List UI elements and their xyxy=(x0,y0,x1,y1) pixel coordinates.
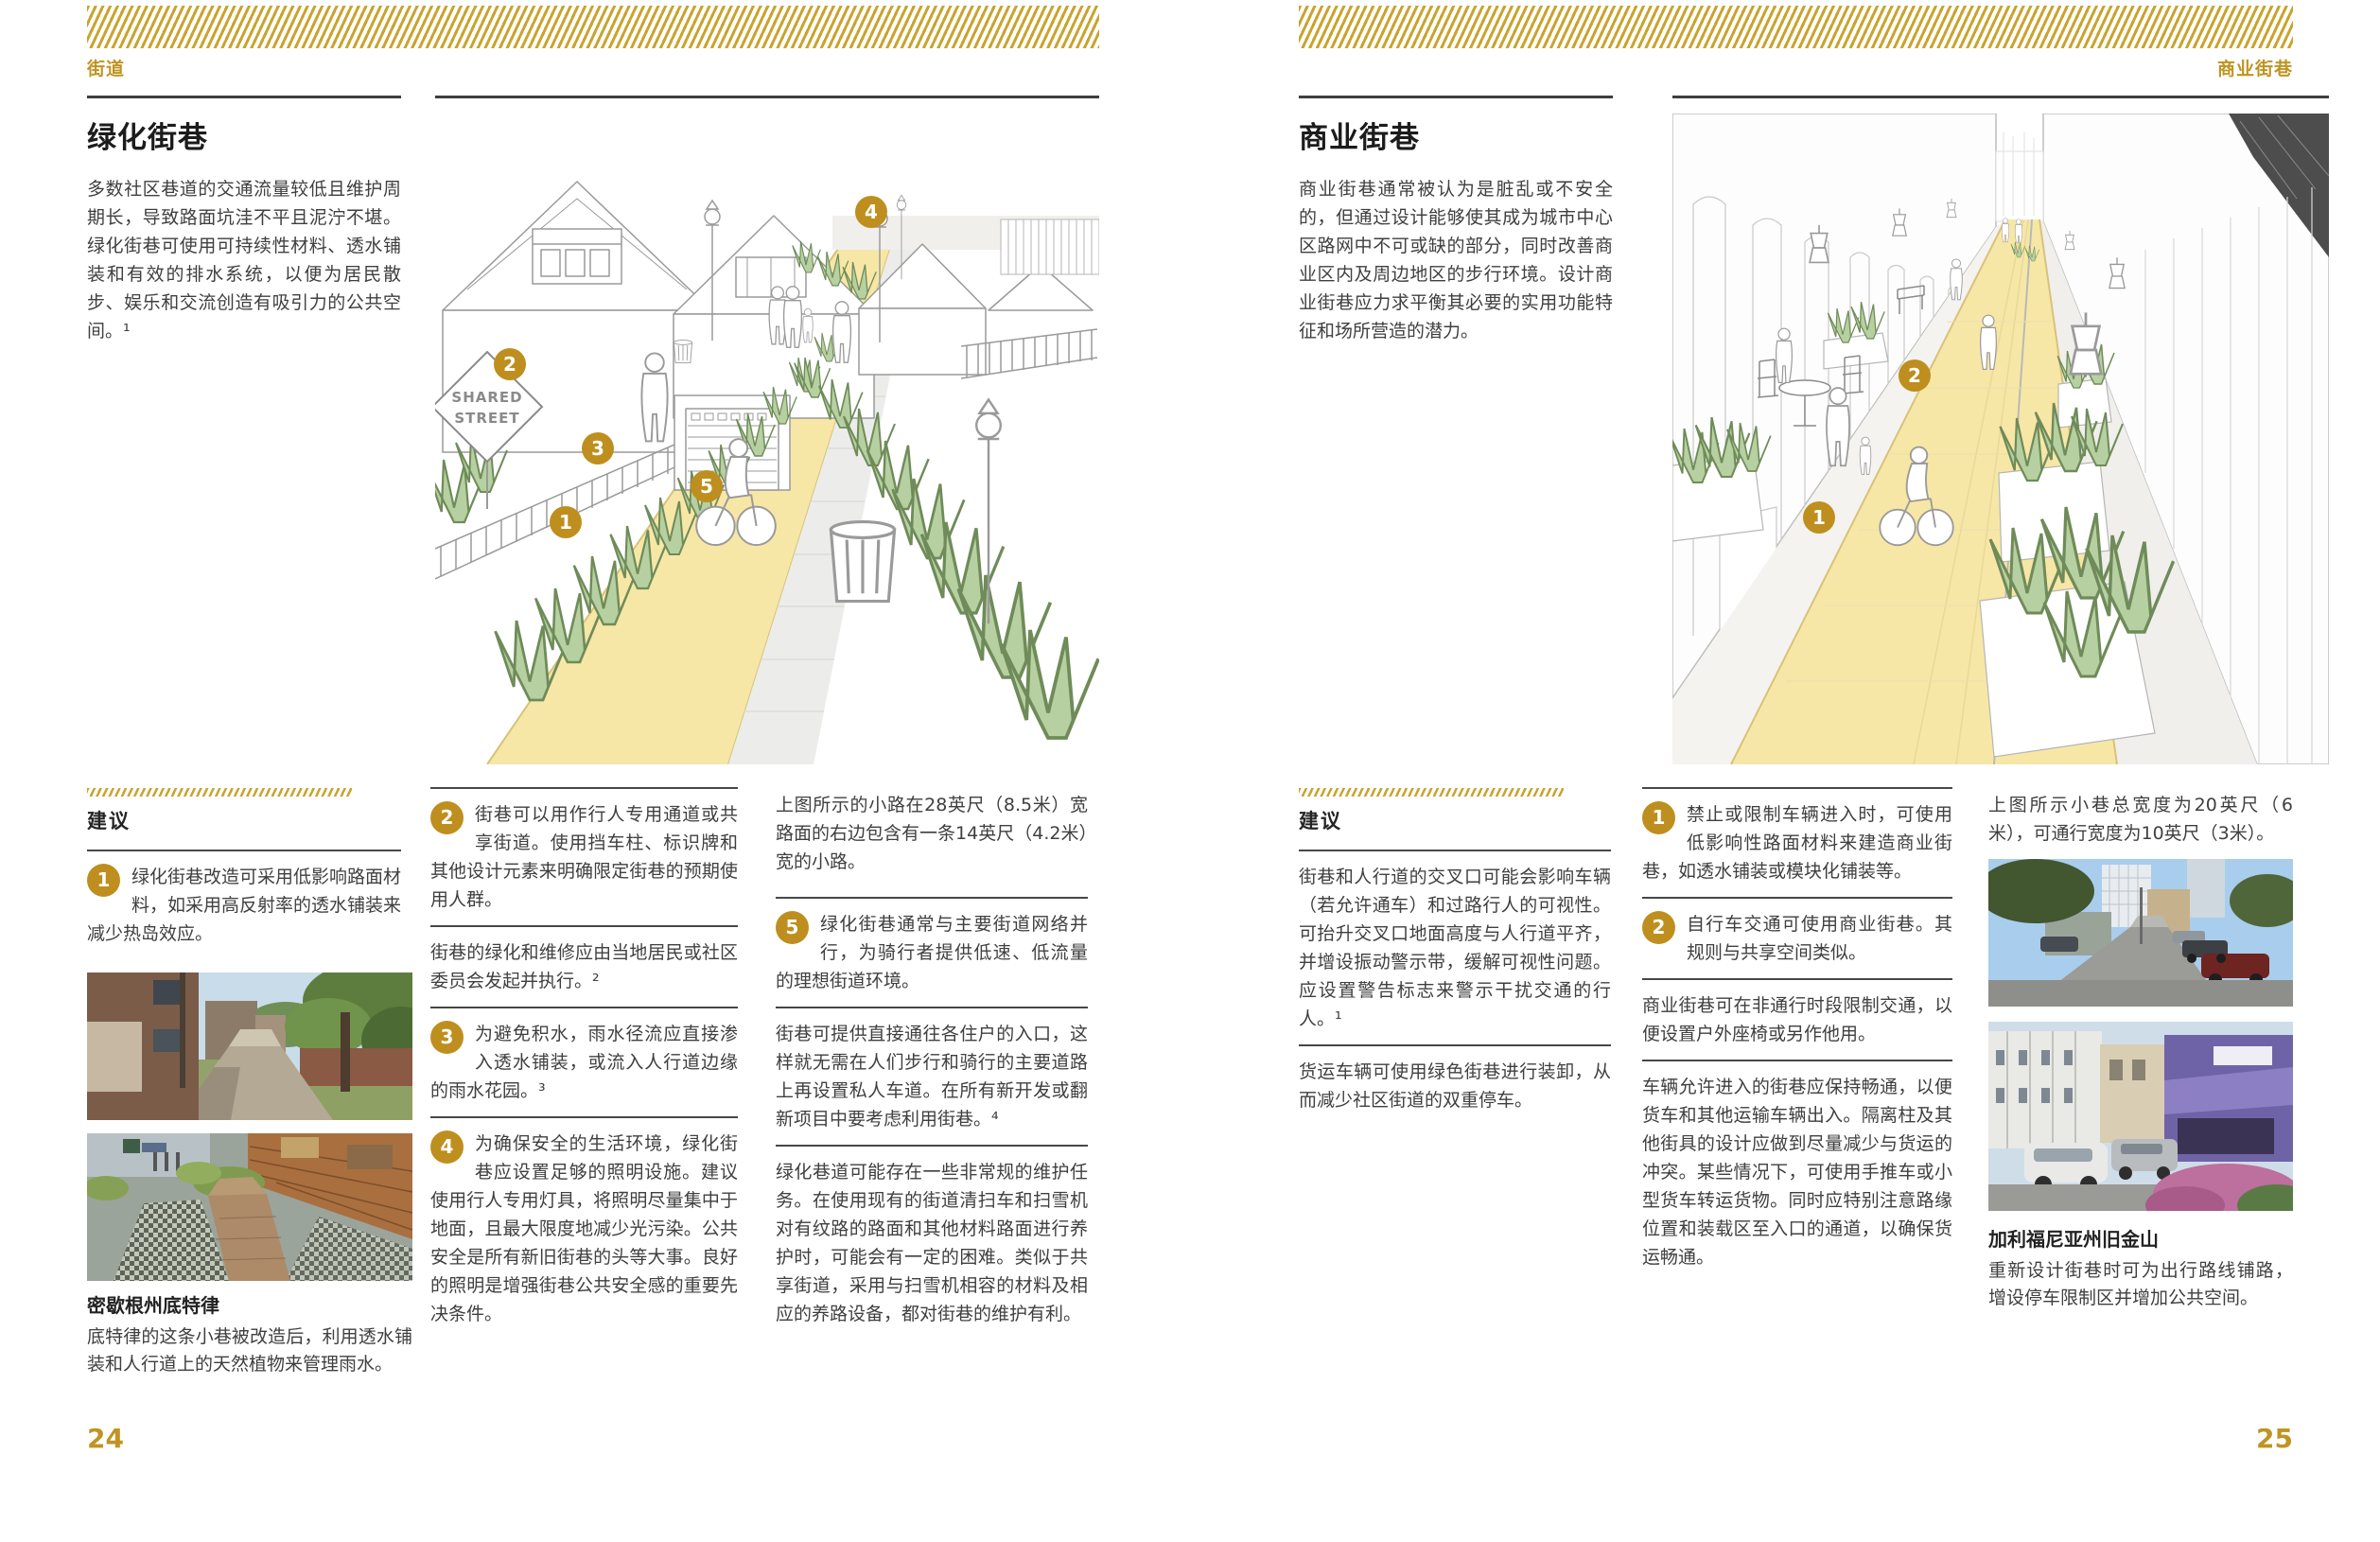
rule xyxy=(776,1007,1088,1008)
left-rec-1: 1 绿化街巷改造可采用低影响路面材料，如采用高反射率的透水铺装来减少热岛效应。 xyxy=(87,863,401,948)
left-hatch-band xyxy=(87,6,1099,48)
rule xyxy=(776,1145,1088,1147)
left-rec-5: 5 绿化街巷通常与主要街道网络并行，为骑行者提供低速、低流量的理想街道环境。 xyxy=(776,910,1088,995)
left-rec-paragraph-2: 街巷可提供直接通往各住户的入口，这样就无需在人们步行和骑行的主要道路上再设置私人… xyxy=(776,1020,1088,1133)
svg-text:1: 1 xyxy=(1812,506,1826,529)
right-title-block: 商业街巷 商业街巷通常被认为是脏乱或不安全的，但通过设计能够使其成为城市中心区路… xyxy=(1299,96,1613,345)
recommendations-hatch xyxy=(87,788,352,797)
badge-4: 4 xyxy=(430,1130,464,1164)
rule xyxy=(1299,1044,1611,1046)
callout-marker-3: 3 xyxy=(582,432,614,464)
callout-marker-2: 2 xyxy=(1899,359,1931,392)
left-rec-paragraph-3: 绿化巷道可能存在一些非常规的维护任务。在使用现有的街道清扫车和扫雪机对有纹路的路… xyxy=(776,1158,1088,1328)
right-page-title: 商业街巷 xyxy=(1299,114,1613,156)
left-rec-1-text: 绿化街巷改造可采用低影响路面材料，如采用高反射率的透水铺装来减少热岛效应。 xyxy=(87,867,401,944)
left-rec-4: 4 为确保安全的生活环境，绿化街巷应设置足够的照明设施。建议使用行人专用灯具，将… xyxy=(430,1130,738,1328)
left-title-block: 绿化街巷 多数社区巷道的交通流量较低且维护周期长，导致路面坑洼不平且泥泞不堪。绿… xyxy=(87,96,401,345)
right-page-number: 25 xyxy=(2009,1423,2293,1454)
svg-text:4: 4 xyxy=(865,201,878,223)
left-page-title: 绿化街巷 xyxy=(87,114,401,156)
trash-can-icon xyxy=(674,341,691,363)
svg-text:3: 3 xyxy=(591,437,604,460)
rule xyxy=(430,925,738,927)
sign-text-bottom: STREET xyxy=(454,410,519,427)
detroit-photo-before xyxy=(87,973,412,1120)
right-running-header: 商业街巷 xyxy=(2009,55,2293,80)
left-figure-rule xyxy=(435,96,1099,98)
badge-3: 3 xyxy=(430,1021,464,1054)
sf-photo-2 xyxy=(1988,1022,2293,1211)
right-rec-col-3: 上图所示小巷总宽度为20英尺（6米），可通行宽度为10英尺（3米）。 xyxy=(1988,791,2293,1312)
svg-text:2: 2 xyxy=(503,353,516,376)
left-running-header: 街道 xyxy=(87,55,125,80)
rule xyxy=(1642,1060,1952,1061)
badge-2: 2 xyxy=(430,801,464,834)
rule xyxy=(87,850,401,851)
badge-1: 1 xyxy=(87,864,120,897)
rule xyxy=(1642,897,1952,899)
left-rec-3: 3 为避免积水，雨水径流应直接渗入透水铺装，或流入人行道边缘的雨水花园。³ xyxy=(430,1020,738,1105)
callout-marker-5: 5 xyxy=(691,470,723,502)
green-alley-drawing: SHARED STREET 1 2 3 4 5 xyxy=(435,114,1099,764)
right-rec-paragraph-1: 街巷和人行道的交叉口可能会影响车辆（若允许通车）和过路行人的可视性。可抬升交叉口… xyxy=(1299,863,1611,1033)
rule xyxy=(1642,978,1952,980)
callout-marker-1: 1 xyxy=(550,506,582,538)
right-recommendations-label: 建议 xyxy=(1299,806,1611,834)
right-rec-paragraph-2: 货运车辆可使用绿色街巷进行装卸，从而减少社区街道的双重停车。 xyxy=(1299,1058,1611,1114)
right-intro-paragraph: 商业街巷通常被认为是脏乱或不安全的，但通过设计能够使其成为城市中心区路网中不可或… xyxy=(1299,175,1613,345)
badge-5: 5 xyxy=(776,911,809,944)
sf-photo-1 xyxy=(1988,859,2293,1007)
callout-marker-2: 2 xyxy=(494,348,526,380)
badge-2: 2 xyxy=(1642,911,1675,944)
svg-text:5: 5 xyxy=(700,475,713,498)
badge-1: 1 xyxy=(1642,801,1675,834)
callout-marker-1: 1 xyxy=(1803,501,1835,534)
book-spread: 街道 绿化街巷 多数社区巷道的交通流量较低且维护周期长，导致路面坑洼不平且泥泞不… xyxy=(0,0,2380,1542)
left-title-rule xyxy=(87,96,401,98)
right-recommendations-block: 建议 街巷和人行道的交叉口可能会影响车辆（若允许通车）和过路行人的可视性。可抬升… xyxy=(1299,788,1611,1114)
svg-text:2: 2 xyxy=(1908,364,1921,387)
callout-marker-4: 4 xyxy=(855,196,887,228)
left-page-number: 24 xyxy=(87,1423,124,1454)
right-rec-paragraph-3: 商业街巷可在非通行时段限制交通，以便设置户外座椅或另作他用。 xyxy=(1642,991,1952,1048)
right-rec-col-2: 1 禁止或限制车辆进入时，可使用低影响性路面材料来建造商业街巷，如透水铺装或模块… xyxy=(1642,787,1952,1271)
left-figure-caption: 上图所示的小路在28英尺（8.5米）宽路面的右边包含有一条14英尺（4.2米）宽… xyxy=(776,791,1088,876)
commercial-alley-illustration: 1 2 xyxy=(1672,96,2329,764)
right-title-rule xyxy=(1299,96,1613,98)
left-photo-caption-title: 密歇根州底特律 xyxy=(87,1290,412,1318)
left-intro-paragraph: 多数社区巷道的交通流量较低且维护周期长，导致路面坑洼不平且泥泞不堪。绿化街巷可使… xyxy=(87,175,401,345)
left-rec-2-text: 街巷可以用作行人专用通道或共享街道。使用挡车柱、标识牌和其他设计元素来明确限定街… xyxy=(430,804,738,910)
left-rec-3-text: 为避免积水，雨水径流应直接渗入透水铺装，或流入人行道边缘的雨水花园。³ xyxy=(430,1024,738,1101)
right-photo-caption-text: 重新设计街巷时可为出行路线铺路，增设停车限制区并增加公共空间。 xyxy=(1988,1257,2293,1312)
left-rec-col-3: 上图所示的小路在28英尺（8.5米）宽路面的右边包含有一条14英尺（4.2米）宽… xyxy=(776,791,1088,1328)
rule xyxy=(1299,850,1611,851)
svg-text:1: 1 xyxy=(559,511,572,534)
left-photo-caption: 密歇根州底特律 底特律的这条小巷被改造后，利用透水铺装和人行道上的天然植物来管理… xyxy=(87,1290,412,1378)
right-figure-rule xyxy=(1672,96,2329,98)
left-rec-col-2: 2 街巷可以用作行人专用通道或共享街道。使用挡车柱、标识牌和其他设计元素来明确限… xyxy=(430,787,738,1328)
right-hatch-band xyxy=(1299,6,2293,48)
left-rec-5-text: 绿化街巷通常与主要街道网络并行，为骑行者提供低速、低流量的理想街道环境。 xyxy=(776,914,1088,991)
rule xyxy=(430,1007,738,1008)
trash-can-icon xyxy=(831,522,894,602)
left-rec-4-text: 为确保安全的生活环境，绿化街巷应设置足够的照明设施。建议使用行人专用灯具，将照明… xyxy=(430,1133,738,1324)
left-photo-caption-text: 底特律的这条小巷被改造后，利用透水铺装和人行道上的天然植物来管理雨水。 xyxy=(87,1323,412,1378)
right-photo-caption-title: 加利福尼亚州旧金山 xyxy=(1988,1224,2293,1252)
right-rec-paragraph-4: 车辆允许进入的街巷应保持畅通，以便货车和其他运输车辆出入。隔离柱及其他街具的设计… xyxy=(1642,1073,1952,1271)
right-rec-2-text: 自行车交通可使用商业街巷。其规则与共享空间类似。 xyxy=(1687,914,1952,963)
left-rec-2: 2 街巷可以用作行人专用通道或共享街道。使用挡车柱、标识牌和其他设计元素来明确限… xyxy=(430,800,738,914)
sign-text-top: SHARED xyxy=(451,389,522,406)
left-recommendations-label: 建议 xyxy=(87,806,401,834)
commercial-alley-drawing: 1 2 xyxy=(1672,114,2329,764)
rule xyxy=(1642,787,1952,789)
left-rec-paragraph-1: 街巷的绿化和维修应由当地居民或社区委员会发起并执行。² xyxy=(430,938,738,995)
right-rec-1: 1 禁止或限制车辆进入时，可使用低影响性路面材料来建造商业街巷，如透水铺装或模块… xyxy=(1642,800,1952,885)
right-figure-caption: 上图所示小巷总宽度为20英尺（6米），可通行宽度为10英尺（3米）。 xyxy=(1988,791,2293,848)
recommendations-hatch xyxy=(1299,788,1564,797)
detroit-photo-after xyxy=(87,1133,412,1281)
rule xyxy=(776,897,1088,899)
right-rec-2: 2 自行车交通可使用商业街巷。其规则与共享空间类似。 xyxy=(1642,910,1952,967)
rule xyxy=(430,1116,738,1118)
right-rec-1-text: 禁止或限制车辆进入时，可使用低影响性路面材料来建造商业街巷，如透水铺装或模块化铺… xyxy=(1642,804,1952,882)
left-recommendations-block: 建议 1 绿化街巷改造可采用低影响路面材料，如采用高反射率的透水铺装来减少热岛效… xyxy=(87,788,401,948)
green-alley-illustration: SHARED STREET 1 2 3 4 5 xyxy=(435,96,1099,764)
rule xyxy=(430,787,738,789)
